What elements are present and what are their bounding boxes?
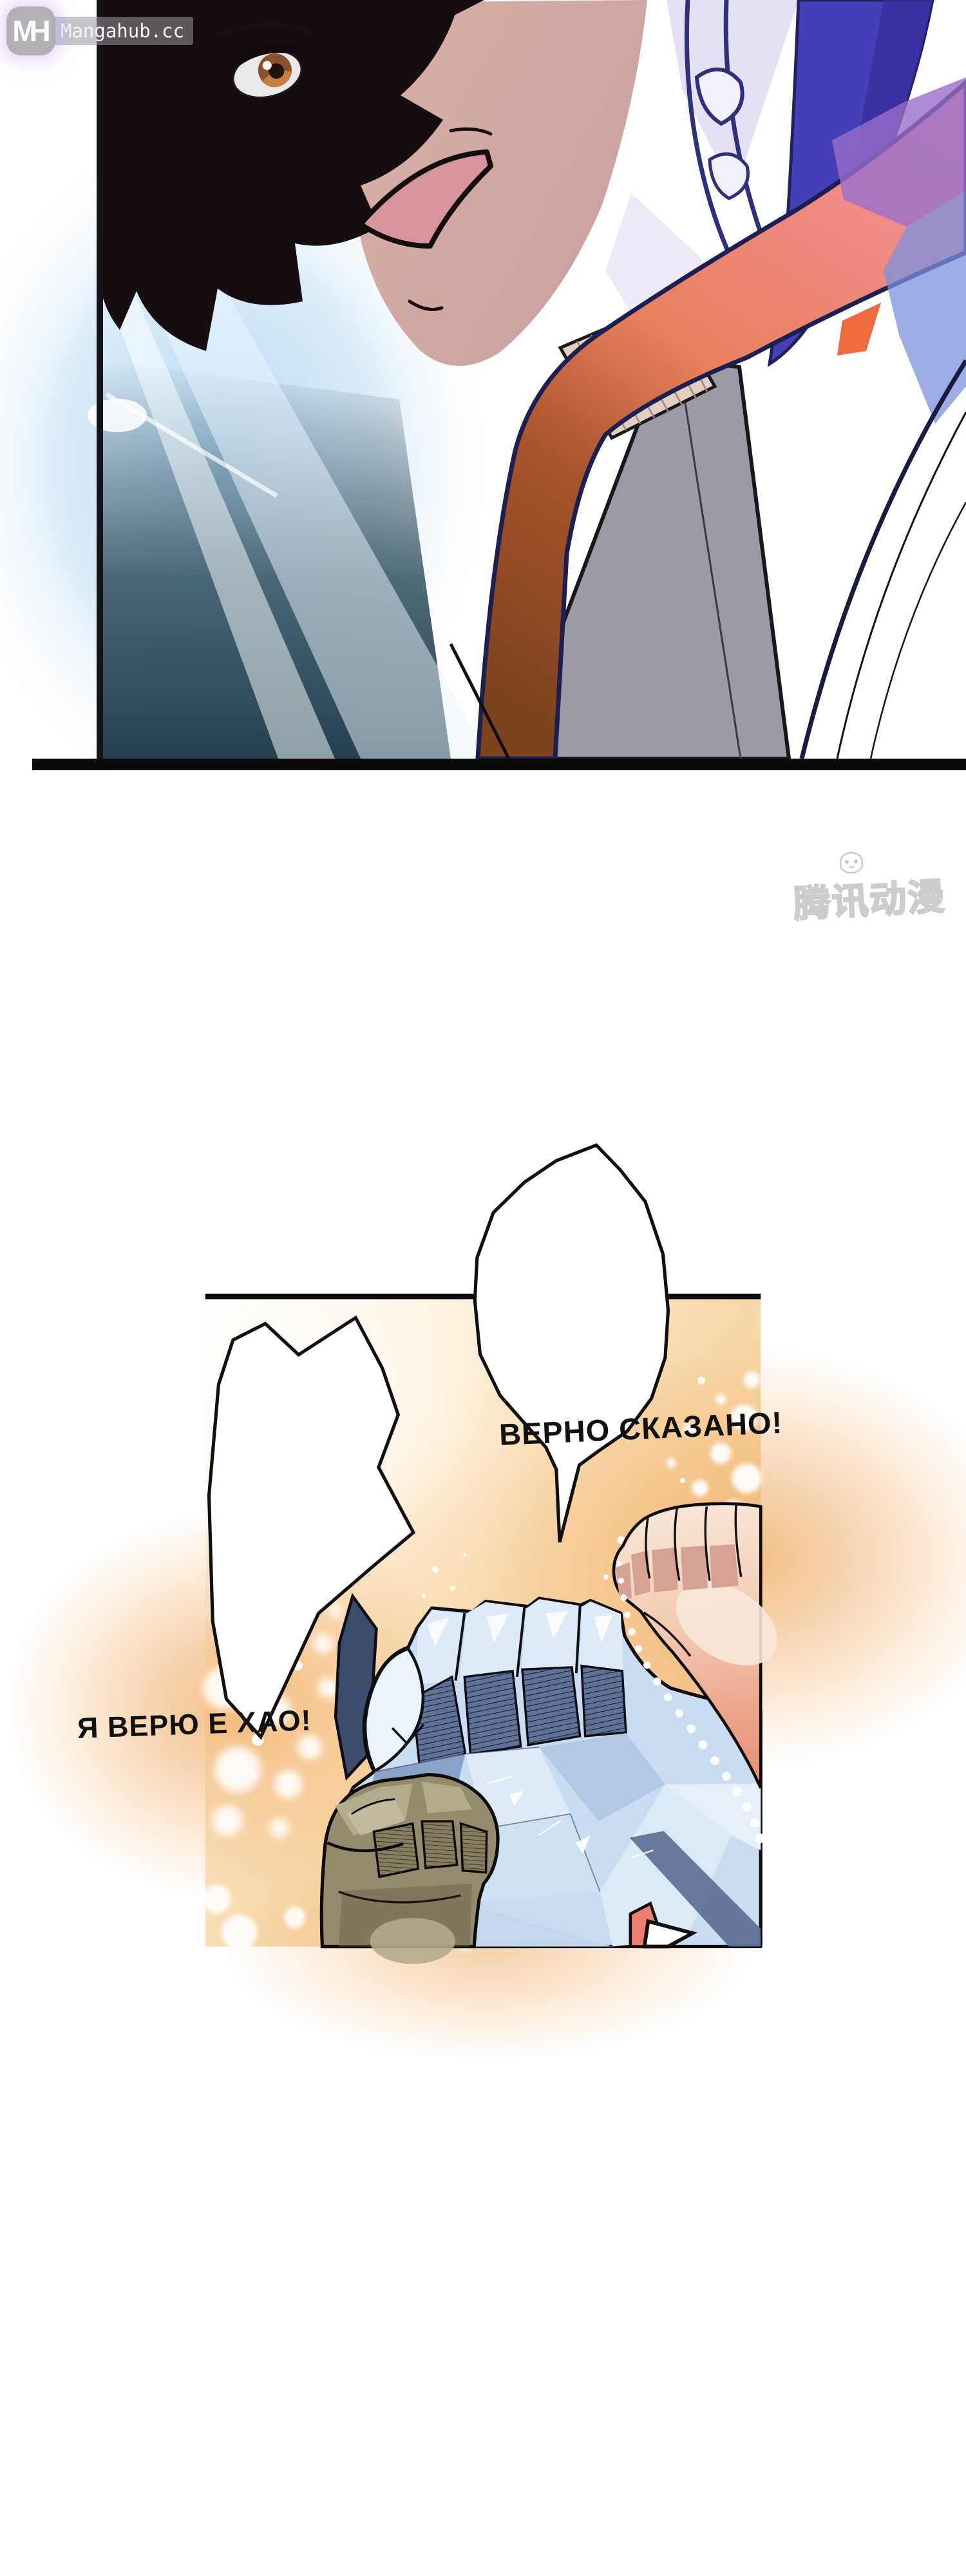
publisher-watermark-text: 腾讯动漫 <box>792 867 947 928</box>
olive-fist <box>321 1775 498 1964</box>
bottom-panel-artwork <box>0 1095 966 2576</box>
penguin-mascot-icon <box>837 851 866 875</box>
site-name-text: Mangahub.cc <box>61 20 184 42</box>
panel-bottom-border <box>32 759 966 770</box>
site-name-watermark: Mangahub.cc <box>54 17 193 45</box>
publisher-watermark: 腾讯动漫 <box>792 864 962 930</box>
panel-left-border <box>97 0 103 759</box>
site-logo-initials-icon: MH <box>12 14 43 48</box>
site-logo-badge: MH <box>6 6 55 55</box>
manga-page: MH Mangahub.cc 腾讯动漫 <box>0 0 966 2576</box>
top-panel-artwork <box>0 0 966 773</box>
